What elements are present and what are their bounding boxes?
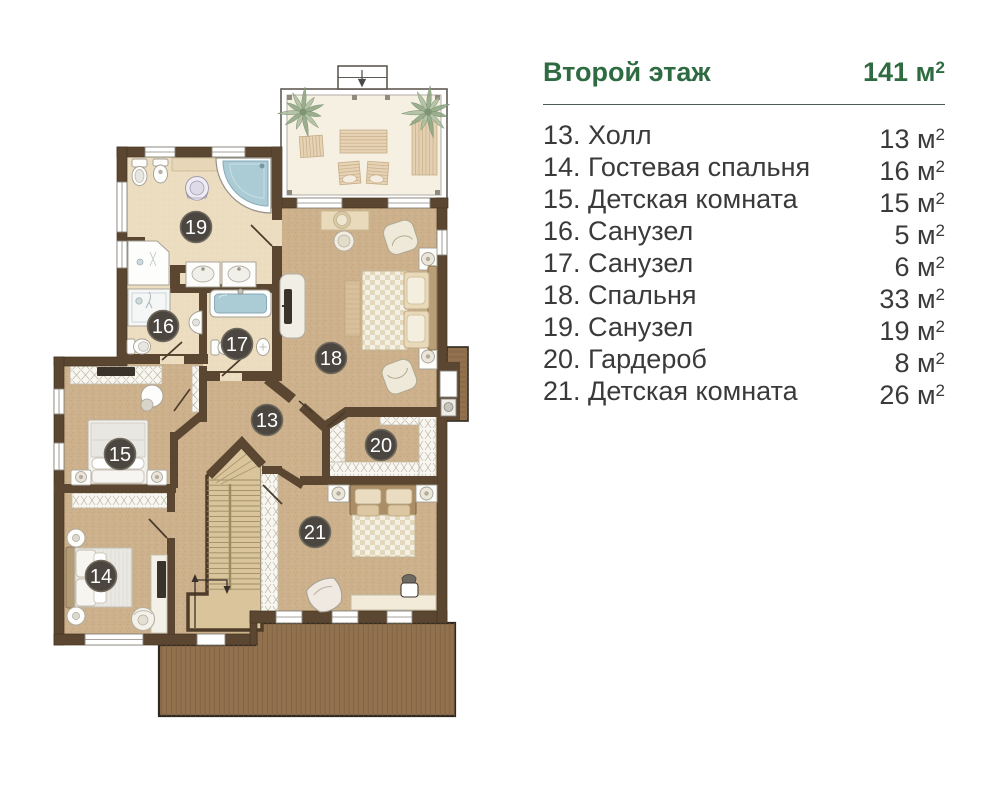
svg-text:19: 19	[185, 217, 207, 239]
svg-text:20: 20	[370, 435, 392, 457]
svg-text:16: 16	[152, 316, 174, 338]
svg-text:18: 18	[320, 348, 342, 370]
svg-text:21: 21	[304, 522, 326, 544]
svg-text:15: 15	[109, 444, 131, 466]
svg-text:13: 13	[256, 410, 278, 432]
svg-text:17: 17	[226, 334, 248, 356]
svg-text:14: 14	[90, 566, 112, 588]
